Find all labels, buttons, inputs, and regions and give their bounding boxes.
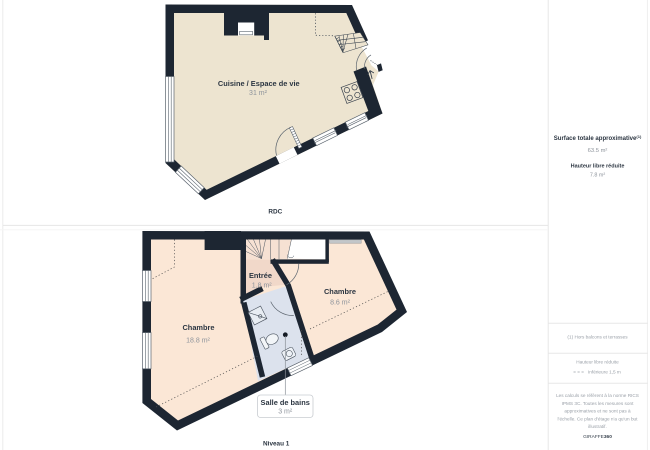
svg-text:1.8 m²: 1.8 m² — [252, 282, 273, 289]
svg-text:3 m²: 3 m² — [278, 409, 293, 416]
svg-text:RDC: RDC — [268, 208, 282, 215]
svg-text:Hauteur libre réduite: Hauteur libre réduite — [576, 359, 619, 364]
svg-text:(1) Hors balcons et terrasses: (1) Hors balcons et terrasses — [567, 334, 628, 339]
svg-text:Chambre: Chambre — [324, 287, 356, 296]
svg-text:18.8 m²: 18.8 m² — [186, 338, 210, 345]
svg-text:Chambre: Chambre — [182, 323, 214, 332]
svg-text:IPMS 3C. Toutes les mesures so: IPMS 3C. Toutes les mesures sont — [562, 401, 635, 406]
svg-text:Niveau 1: Niveau 1 — [263, 441, 290, 448]
svg-text:Surface totale approximative(1: Surface totale approximative(1) — [554, 134, 642, 142]
svg-text:Inférieure 1,5 m: Inférieure 1,5 m — [588, 370, 621, 375]
svg-text:Cuisine / Espace de vie: Cuisine / Espace de vie — [218, 79, 300, 88]
svg-text:7.8 m²: 7.8 m² — [590, 172, 605, 178]
svg-text:GIRAFFE360: GIRAFFE360 — [583, 434, 612, 440]
svg-text:Salle de bains: Salle de bains — [261, 398, 310, 407]
svg-text:approximatives et ne sont pas: approximatives et ne sont pas à — [564, 409, 631, 414]
svg-text:63.5 m²: 63.5 m² — [588, 148, 608, 154]
svg-text:8.6 m²: 8.6 m² — [330, 300, 351, 307]
svg-text:31 m²: 31 m² — [249, 90, 268, 97]
svg-text:illustratif.: illustratif. — [588, 424, 607, 429]
svg-text:l'échelle. Ce plan d'étage n'a: l'échelle. Ce plan d'étage n'a qu'un but — [558, 416, 639, 421]
svg-text:Entrée: Entrée — [249, 271, 272, 280]
svg-text:Hauteur libre réduite: Hauteur libre réduite — [571, 163, 625, 169]
svg-text:Les calculs se réfèrent à la n: Les calculs se réfèrent à la norme RICS — [556, 393, 639, 398]
